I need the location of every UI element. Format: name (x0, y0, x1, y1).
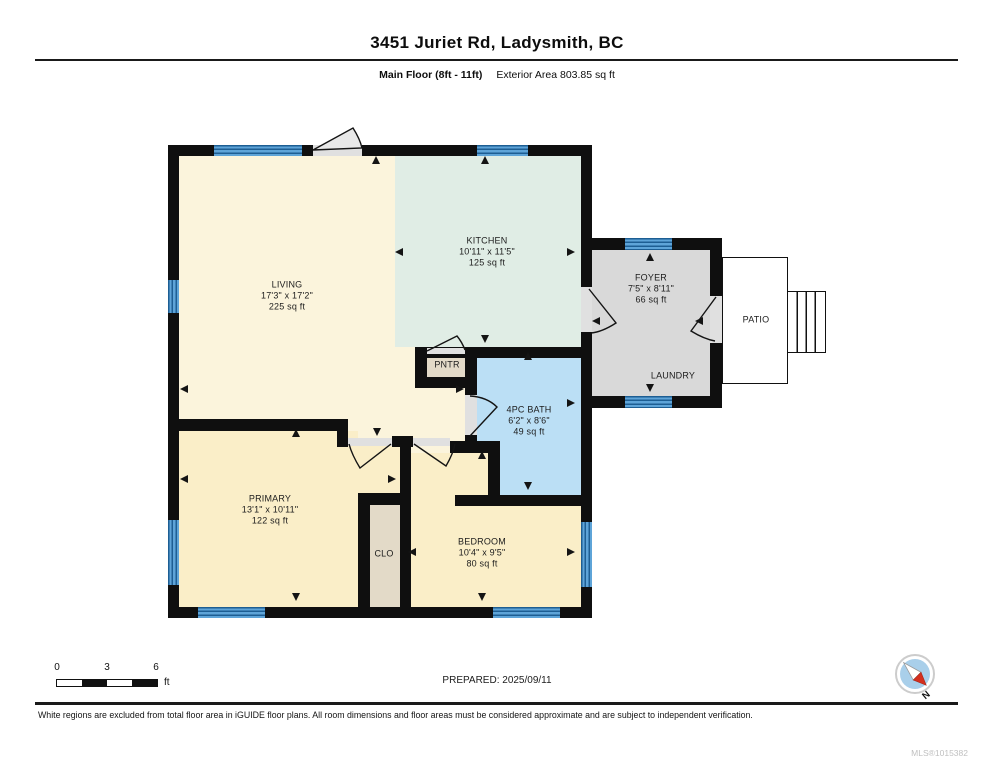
door-opening (465, 395, 477, 435)
direction-arrow (567, 399, 575, 407)
window (168, 520, 179, 585)
window (214, 145, 302, 156)
direction-arrow (524, 482, 532, 490)
prepared-date: PREPARED: 2025/09/11 (0, 675, 994, 686)
wall (358, 493, 370, 618)
direction-arrow (395, 248, 403, 256)
scale-tick-3: 3 (104, 662, 110, 673)
wall (337, 419, 348, 447)
direction-arrow (567, 248, 575, 256)
direction-arrow (524, 352, 532, 360)
walls-layer (0, 0, 994, 767)
direction-arrow (646, 384, 654, 392)
floor-plan-page: 3451 Juriet Rd, Ladysmith, BC Main Floor… (0, 0, 994, 767)
direction-arrow (180, 385, 188, 393)
direction-arrow (592, 317, 600, 325)
window (168, 280, 179, 313)
direction-arrow (478, 451, 486, 459)
direction-arrow (373, 428, 381, 436)
room-label-foyer: FOYER 7'5" x 8'11" 66 sq ft (628, 273, 674, 306)
room-label-closet: CLO (374, 549, 393, 560)
window (625, 396, 672, 408)
window (625, 238, 672, 250)
direction-arrow (481, 156, 489, 164)
direction-arrow (180, 475, 188, 483)
wall (400, 443, 411, 618)
direction-arrow (292, 429, 300, 437)
floor-plan: LIVING 17'3" x 17'2" 225 sq ft KITCHEN 1… (0, 0, 994, 767)
direction-arrow (408, 548, 416, 556)
direction-arrow (478, 593, 486, 601)
room-label-living: LIVING 17'3" x 17'2" 225 sq ft (261, 280, 313, 313)
window (493, 607, 560, 618)
compass-needle-icon (895, 654, 935, 694)
mls-number: MLS®1015382 (911, 748, 968, 758)
scale-tick-6: 6 (153, 662, 159, 673)
wall (455, 495, 592, 506)
direction-arrow (481, 335, 489, 343)
wall (465, 347, 477, 395)
room-label-primary: PRIMARY 13'1" x 10'11" 122 sq ft (242, 494, 299, 527)
direction-arrow (567, 548, 575, 556)
door-opening (710, 296, 722, 343)
room-label-patio: PATIO (743, 315, 770, 326)
direction-arrow (372, 156, 380, 164)
window (198, 607, 265, 618)
room-label-bedroom: BEDROOM 10'4" x 9'5" 80 sq ft (458, 537, 506, 570)
direction-arrow (646, 253, 654, 261)
window (477, 145, 528, 156)
door-opening (581, 287, 592, 332)
footer-disclaimer: White regions are excluded from total fl… (38, 710, 958, 720)
door-opening (413, 438, 450, 446)
door-opening (348, 438, 392, 446)
compass: N (895, 654, 935, 694)
scale-tick-0: 0 (54, 662, 60, 673)
direction-arrow (456, 385, 464, 393)
door-opening (313, 145, 362, 156)
direction-arrow (388, 475, 396, 483)
direction-arrow (292, 593, 300, 601)
footer-divider (35, 702, 958, 705)
room-label-laundry: LAUNDRY (651, 371, 695, 382)
room-label-bath: 4PC BATH 6'2" x 8'6" 49 sq ft (507, 405, 552, 438)
room-label-pantry: PNTR (434, 360, 459, 371)
window (581, 522, 592, 587)
door-opening (427, 348, 465, 354)
direction-arrow (695, 317, 703, 325)
room-label-kitchen: KITCHEN 10'11" x 11'5" 125 sq ft (459, 236, 515, 269)
wall (168, 419, 343, 431)
